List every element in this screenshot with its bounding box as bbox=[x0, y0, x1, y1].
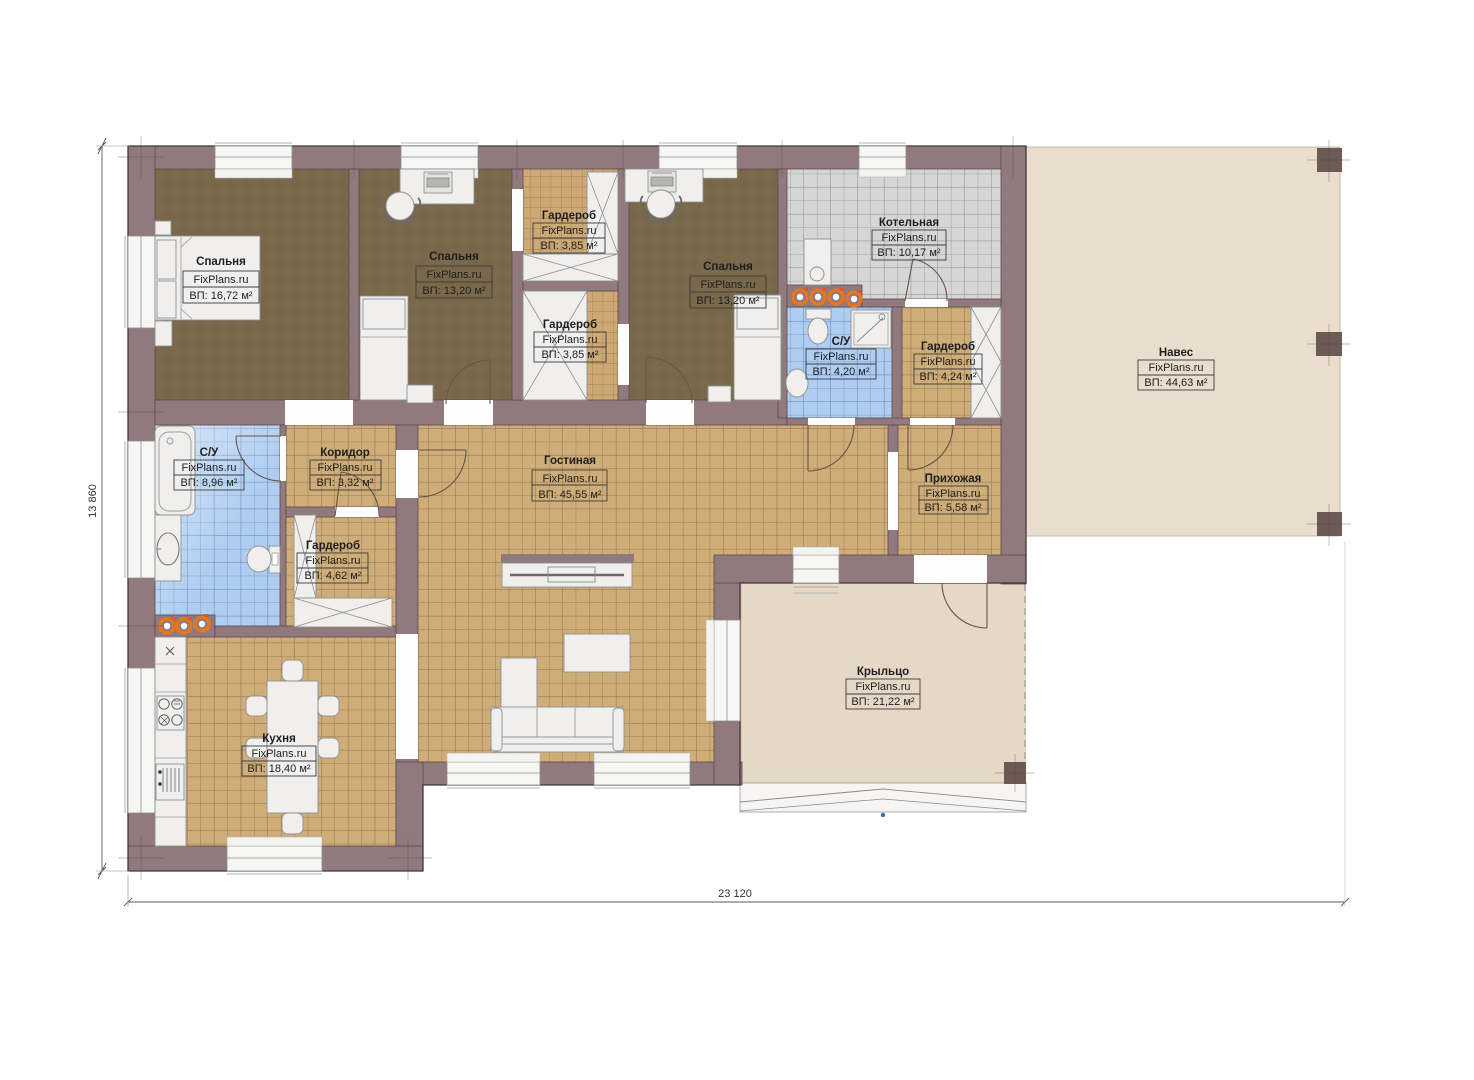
svg-text:Гардероб: Гардероб bbox=[543, 319, 597, 331]
svg-text:Навес: Навес bbox=[1159, 347, 1194, 359]
svg-text:ВП: 3,85 м²: ВП: 3,85 м² bbox=[540, 240, 597, 252]
svg-text:ВП: 10,17 м²: ВП: 10,17 м² bbox=[877, 247, 941, 259]
svg-text:Гардероб: Гардероб bbox=[542, 210, 596, 222]
svg-text:FixPlans.ru: FixPlans.ru bbox=[305, 555, 360, 567]
svg-text:FixPlans.ru: FixPlans.ru bbox=[542, 473, 597, 485]
svg-text:FixPlans.ru: FixPlans.ru bbox=[193, 274, 248, 286]
svg-text:ВП: 45,55 м²: ВП: 45,55 м² bbox=[538, 489, 602, 501]
svg-text:ВП: 5,58 м²: ВП: 5,58 м² bbox=[924, 502, 981, 514]
svg-text:Прихожая: Прихожая bbox=[925, 473, 982, 485]
svg-text:FixPlans.ru: FixPlans.ru bbox=[541, 225, 596, 237]
svg-text:FixPlans.ru: FixPlans.ru bbox=[881, 232, 936, 244]
svg-text:ВП: 8,96 м²: ВП: 8,96 м² bbox=[180, 477, 237, 489]
svg-text:13 860: 13 860 bbox=[87, 484, 99, 518]
svg-text:Гардероб: Гардероб bbox=[921, 341, 975, 353]
svg-text:ВП: 18,40 м²: ВП: 18,40 м² bbox=[247, 763, 311, 775]
svg-text:Гостиная: Гостиная bbox=[544, 455, 596, 467]
svg-text:23 120: 23 120 bbox=[718, 888, 752, 900]
svg-text:ВП: 13,20 м²: ВП: 13,20 м² bbox=[422, 285, 486, 297]
svg-text:Гардероб: Гардероб bbox=[306, 540, 360, 552]
svg-text:ВП: 16,72 м²: ВП: 16,72 м² bbox=[189, 290, 253, 302]
svg-text:С/У: С/У bbox=[832, 336, 852, 348]
svg-text:FixPlans.ru: FixPlans.ru bbox=[181, 462, 236, 474]
svg-text:FixPlans.ru: FixPlans.ru bbox=[251, 748, 306, 760]
svg-text:FixPlans.ru: FixPlans.ru bbox=[1148, 362, 1203, 374]
svg-text:FixPlans.ru: FixPlans.ru bbox=[855, 681, 910, 693]
svg-text:ВП: 44,63 м²: ВП: 44,63 м² bbox=[1144, 377, 1208, 389]
svg-text:Спальня: Спальня bbox=[429, 251, 479, 263]
svg-text:FixPlans.ru: FixPlans.ru bbox=[542, 334, 597, 346]
svg-text:FixPlans.ru: FixPlans.ru bbox=[925, 488, 980, 500]
svg-text:FixPlans.ru: FixPlans.ru bbox=[920, 356, 975, 368]
svg-text:FixPlans.ru: FixPlans.ru bbox=[317, 462, 372, 474]
svg-text:ВП: 21,22 м²: ВП: 21,22 м² bbox=[851, 696, 915, 708]
svg-text:Котельная: Котельная bbox=[879, 217, 939, 229]
svg-text:FixPlans.ru: FixPlans.ru bbox=[426, 269, 481, 281]
svg-text:ВП: 4,62 м²: ВП: 4,62 м² bbox=[304, 570, 361, 582]
svg-text:Кухня: Кухня bbox=[262, 733, 296, 745]
svg-text:Спальня: Спальня bbox=[703, 261, 753, 273]
svg-text:ВП: 4,20 м²: ВП: 4,20 м² bbox=[812, 366, 869, 378]
svg-text:FixPlans.ru: FixPlans.ru bbox=[813, 351, 868, 363]
svg-text:FixPlans.ru: FixPlans.ru bbox=[700, 279, 755, 291]
svg-text:Крыльцо: Крыльцо bbox=[857, 666, 909, 678]
svg-text:Спальня: Спальня bbox=[196, 256, 246, 268]
svg-text:ВП: 4,24 м²: ВП: 4,24 м² bbox=[919, 371, 976, 383]
svg-text:ВП: 3,32 м²: ВП: 3,32 м² bbox=[316, 477, 373, 489]
svg-text:ВП: 3,85 м²: ВП: 3,85 м² bbox=[541, 349, 598, 361]
svg-text:С/У: С/У bbox=[200, 447, 220, 459]
svg-text:ВП: 13,20 м²: ВП: 13,20 м² bbox=[696, 295, 760, 307]
svg-text:Коридор: Коридор bbox=[320, 447, 370, 459]
